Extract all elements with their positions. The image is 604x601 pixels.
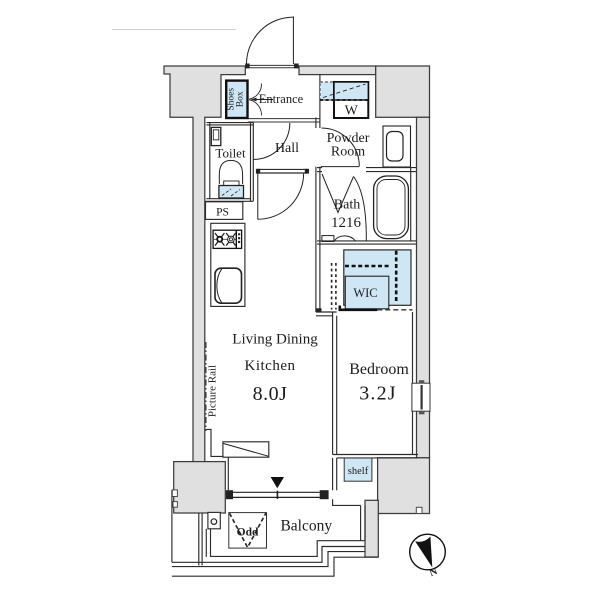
svg-text:Entrance: Entrance [259,92,304,106]
svg-text:Bedroom: Bedroom [349,361,409,378]
svg-text:Balcony: Balcony [280,518,332,535]
svg-text:Odd: Odd [237,527,259,539]
svg-text:Toilet: Toilet [215,146,246,161]
svg-text:W: W [345,104,359,119]
svg-text:Hall: Hall [275,141,299,156]
svg-text:1216: 1216 [331,215,362,231]
svg-text:PS: PS [216,207,229,219]
svg-text:Bath: Bath [334,198,360,213]
svg-text:Kitchen: Kitchen [245,358,296,374]
svg-text:Picture Rail: Picture Rail [206,365,218,417]
svg-text:Living Dining: Living Dining [232,332,318,348]
svg-text:8.0J: 8.0J [253,383,288,405]
svg-text:shelf: shelf [348,466,369,477]
svg-text:WIC: WIC [353,286,377,300]
svg-text:3.2J: 3.2J [359,383,397,405]
svg-text:Box: Box [236,91,246,107]
svg-text:Room: Room [331,144,365,159]
